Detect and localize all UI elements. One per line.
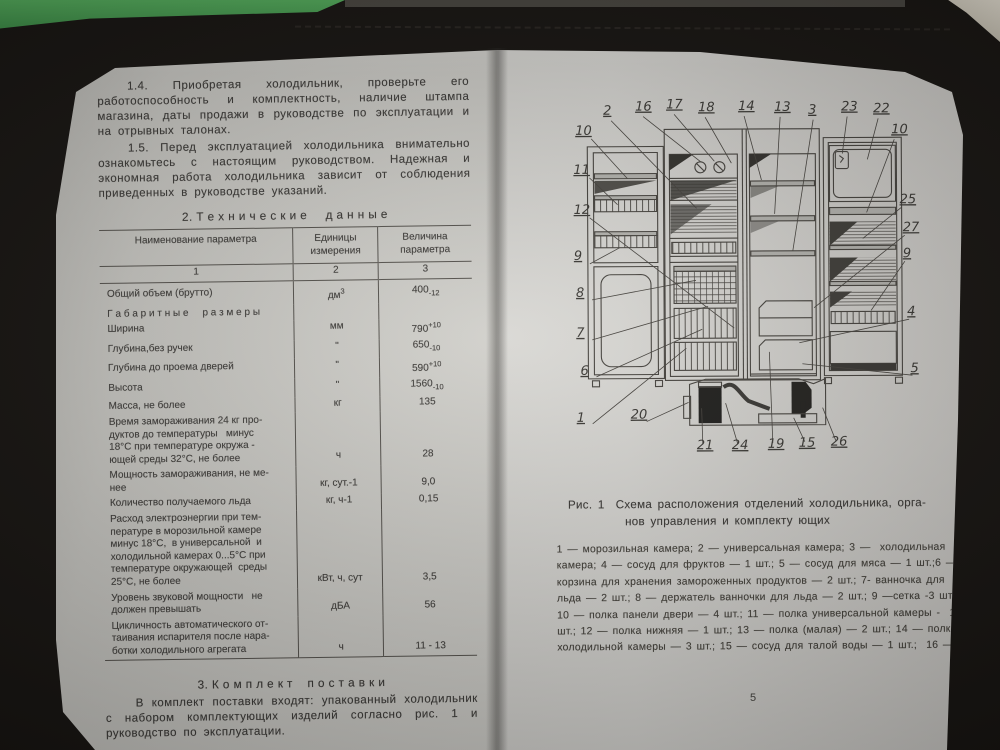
value-cell: 650-10 bbox=[380, 337, 473, 357]
header-units: Единицы измерения bbox=[293, 227, 379, 264]
table-row: Цикличность автоматического от- таивания… bbox=[105, 614, 478, 660]
parameter-name-cell: Время замораживания 24 кг про- дуктов до… bbox=[102, 413, 296, 469]
header-parameter-name: Наименование параметра bbox=[99, 228, 293, 267]
column-number-2: 2 bbox=[293, 263, 379, 281]
figure-callout-24: 24 bbox=[732, 438, 749, 453]
parameter-name-cell: Высота bbox=[101, 379, 295, 400]
figure-callout-19: 19 bbox=[768, 437, 785, 452]
figure-callout-2: 2 bbox=[603, 104, 611, 119]
parameter-name-cell: Глубина до проема дверей bbox=[101, 359, 295, 382]
figure-callout-12: 12 bbox=[574, 203, 591, 218]
unit-cell: мм bbox=[294, 319, 380, 340]
figure-callout-18: 18 bbox=[698, 100, 715, 115]
value-cell: 135 bbox=[380, 395, 473, 412]
unit-cell: кВт, ч, сут bbox=[296, 509, 383, 589]
fridge-column bbox=[749, 154, 816, 376]
value-cell bbox=[379, 302, 472, 319]
parameter-name-cell: Общий объем (брутто) bbox=[100, 281, 294, 308]
left-page-content: 1.4. Приобретая холодильник, проверьте е… bbox=[97, 75, 479, 750]
paragraph-1-4: 1.4. Приобретая холодильник, проверьте е… bbox=[97, 75, 470, 140]
value-cell: 56 bbox=[383, 586, 476, 615]
value-cell: 590+10 bbox=[380, 356, 473, 377]
parameter-name-cell: Ширина bbox=[100, 320, 294, 343]
table-row: Ширинамм790+10 bbox=[100, 318, 472, 343]
figure-callout-5: 5 bbox=[910, 361, 918, 376]
table-row: Глубина,без ручек"650-10 bbox=[101, 337, 473, 361]
unit-cell: ч bbox=[295, 411, 381, 466]
green-table-surface bbox=[0, 0, 345, 30]
callout-leader-lines bbox=[589, 113, 913, 445]
unit-cell: " bbox=[295, 377, 381, 397]
value-cell: 1560-10 bbox=[380, 376, 473, 396]
parameter-name-cell: Глубина,без ручек bbox=[101, 340, 295, 361]
paragraph-3: В комплект поставки входят: упакованный … bbox=[106, 692, 479, 742]
value-cell: 28 bbox=[381, 410, 475, 465]
figure-callout-23: 23 bbox=[841, 99, 858, 114]
figure-callout-27: 27 bbox=[903, 220, 920, 235]
figure-callout-4: 4 bbox=[907, 304, 915, 319]
figure-callout-25: 25 bbox=[900, 192, 917, 207]
parameter-name-cell: Количество получаемого льда bbox=[103, 494, 297, 512]
paragraph-1-5: 1.5. Перед эксплуатацией холодильника вн… bbox=[98, 137, 471, 202]
parameter-name-cell: Уровень звуковой мощности не должен прев… bbox=[104, 588, 298, 619]
column-number-row: 1 2 3 bbox=[100, 261, 472, 283]
table-row: Расход электроэнергии при тем- пературе … bbox=[103, 507, 476, 591]
table-row: Уровень звуковой мощности не должен прев… bbox=[104, 586, 476, 619]
section-3-heading: 3. К о м п л е к т п о с т а в к и bbox=[105, 674, 477, 693]
figure-callout-9: 9 bbox=[903, 246, 911, 261]
table-row: Количество получаемого льдакг, ч-10,15 bbox=[103, 492, 475, 513]
figure-caption: Рис. 1 Схема расположения отделений холо… bbox=[568, 494, 1000, 530]
unit-cell: " bbox=[294, 339, 380, 359]
photo-scene: 1.4. Приобретая холодильник, проверьте е… bbox=[0, 0, 1000, 750]
figure-callout-17: 17 bbox=[666, 97, 683, 112]
unit-cell: " bbox=[294, 357, 380, 378]
parameter-name-cell: Г а б а р и т н ы е р а з м е р ы bbox=[100, 304, 294, 322]
table-row: Время замораживания 24 кг про- дуктов до… bbox=[102, 410, 475, 469]
figure-callout-15: 15 bbox=[799, 436, 816, 451]
table-row: Мощность замораживания, не ме- неекг, су… bbox=[102, 464, 474, 497]
figure-callout-13: 13 bbox=[774, 100, 791, 115]
book-gutter-shadow bbox=[486, 48, 508, 750]
table-row: Глубина до проема дверей"590+10 bbox=[101, 356, 473, 381]
unit-cell: кг, сут.-1 bbox=[296, 465, 382, 494]
background-strip bbox=[345, 0, 905, 7]
value-cell: 400-12 bbox=[379, 278, 472, 303]
value-cell: 3,5 bbox=[382, 507, 476, 587]
page-number-right: 5 bbox=[750, 692, 756, 704]
figure-callout-11: 11 bbox=[573, 163, 590, 178]
unit-cell bbox=[294, 303, 380, 320]
figure-diagram: 2161718141332322101112987612010252794521… bbox=[561, 95, 947, 477]
unit-cell: ч bbox=[298, 615, 384, 657]
figure-legend: 1 — морозильная камера; 2 — универсальна… bbox=[557, 540, 972, 658]
case-stitching bbox=[295, 26, 950, 31]
technical-data-table: Наименование параметра Единицы измерения… bbox=[99, 225, 477, 661]
parameter-name-cell: Мощность замораживания, не ме- нее bbox=[102, 466, 296, 497]
table-row: Высота"1560-10 bbox=[101, 376, 473, 400]
figure-callout-6: 6 bbox=[580, 364, 588, 379]
figure-callout-8: 8 bbox=[576, 286, 584, 301]
figure-callout-7: 7 bbox=[576, 326, 585, 341]
header-value: Величина параметра bbox=[378, 225, 472, 262]
parameter-name-cell: Масса, не более bbox=[101, 397, 295, 415]
parameter-name-cell: Цикличность автоматического от- таивания… bbox=[105, 617, 299, 661]
figure-callout-10: 10 bbox=[891, 122, 908, 137]
figure-callout-16: 16 bbox=[635, 100, 652, 115]
table-row: Масса, не болеекг135 bbox=[101, 395, 473, 416]
unit-cell: кг, ч-1 bbox=[296, 493, 382, 510]
figure-callout-26: 26 bbox=[831, 435, 848, 450]
figure-callout-22: 22 bbox=[873, 101, 890, 116]
column-number-1: 1 bbox=[100, 264, 294, 283]
figure-callout-1: 1 bbox=[577, 411, 585, 426]
value-cell: 11 - 13 bbox=[383, 614, 477, 657]
value-cell: 0,15 bbox=[382, 492, 475, 509]
value-cell: 790+10 bbox=[379, 318, 472, 339]
column-number-3: 3 bbox=[379, 261, 472, 279]
table-row: Г а б а р и т н ы е р а з м е р ы bbox=[100, 302, 472, 323]
left-door-panel bbox=[587, 146, 664, 386]
figure-callout-21: 21 bbox=[697, 438, 714, 453]
section-2-heading: 2. Т е х н и ч е с к и е д а н н ы е bbox=[99, 206, 471, 225]
table-row: Общий объем (брутто)дм3400-12 bbox=[100, 278, 472, 307]
value-cell: 9,0 bbox=[381, 464, 474, 493]
parameter-name-cell: Расход электроэнергии при тем- пературе … bbox=[103, 510, 298, 591]
table-header-row: Наименование параметра Единицы измерения… bbox=[99, 225, 471, 266]
cabinet-body bbox=[664, 129, 820, 381]
figure-callout-9: 9 bbox=[574, 249, 582, 264]
machine-compartment bbox=[683, 379, 825, 426]
unit-cell: дм3 bbox=[293, 279, 379, 304]
unit-cell: дБА bbox=[298, 587, 384, 616]
figure-callout-3: 3 bbox=[808, 103, 816, 118]
figure-callout-10: 10 bbox=[575, 124, 592, 139]
unit-cell: кг bbox=[295, 396, 381, 413]
freezer-universal-column bbox=[669, 154, 738, 376]
light-corner-surface bbox=[930, 0, 1000, 42]
right-door-panel bbox=[823, 137, 902, 383]
figure-callout-14: 14 bbox=[738, 99, 755, 114]
figure-callout-20: 20 bbox=[631, 408, 648, 423]
